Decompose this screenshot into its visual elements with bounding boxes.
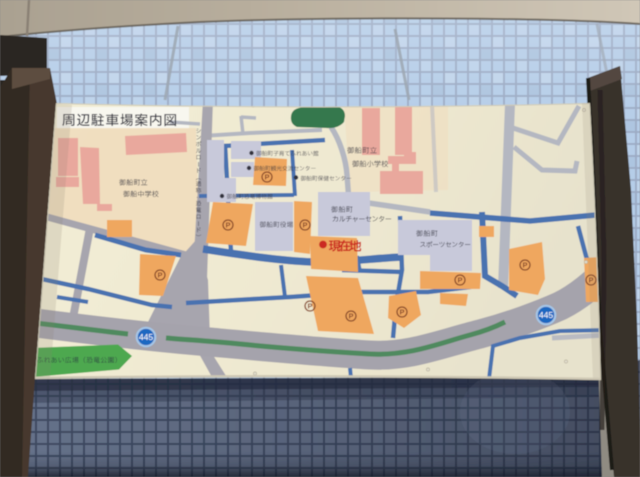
svg-text:P: P xyxy=(157,271,162,280)
svg-text:P: P xyxy=(264,173,269,182)
svg-text:P: P xyxy=(348,312,353,321)
svg-text:445: 445 xyxy=(539,310,554,320)
svg-text:P: P xyxy=(522,261,527,270)
svg-text:P: P xyxy=(457,276,462,285)
svg-text:P: P xyxy=(399,308,404,317)
svg-text:P: P xyxy=(225,221,230,230)
svg-text:445: 445 xyxy=(139,332,154,342)
svg-text:P: P xyxy=(307,302,312,311)
svg-text:P: P xyxy=(302,221,307,230)
